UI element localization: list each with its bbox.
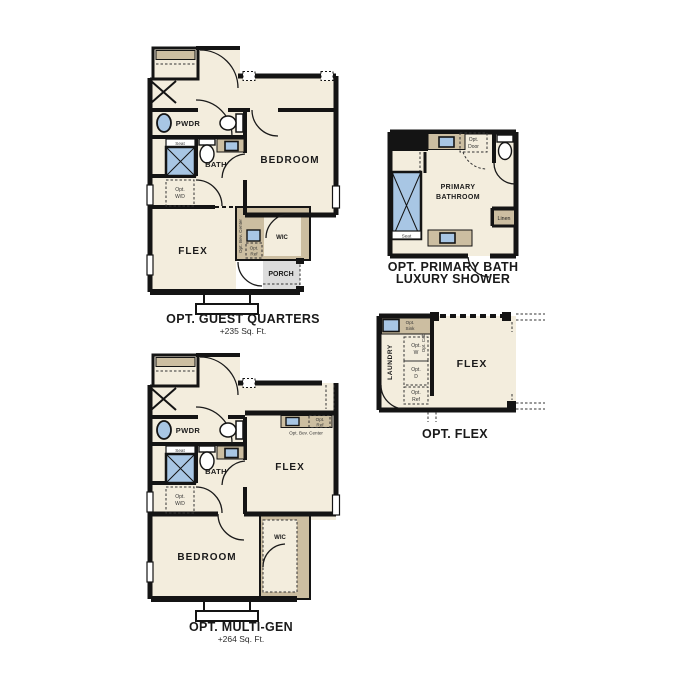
floor-plan-sheet: PWDR Seat BATH Opt. W/D BEDROOM FLEX Opt… [0,0,687,687]
window [333,495,340,515]
opt-ref-label: Ref [250,252,258,257]
window [147,562,153,582]
window [147,255,153,275]
bev-center-label: Opt. Bev. Center [289,431,323,436]
opt-wd-label: Opt. [175,494,184,500]
opt-d-label: D [414,374,418,380]
opt-door-label: Opt. [469,137,478,143]
sink-fixture [440,233,455,243]
opt-d-label: Opt. [411,367,420,373]
primary-shower: Seat [392,172,421,239]
room-label-bedroom: BEDROOM [177,552,236,563]
sink-fixture [157,421,171,439]
bev-center-label: Opt. Bev. Center [238,219,243,253]
room-label-flex: FLEX [275,462,305,473]
room-label-wic: WIC [276,235,288,241]
shower-seat-label: Seat [402,234,412,239]
opt-ref-label: Ref [412,397,420,403]
window [147,185,153,205]
opt-ref-label: Opt. [411,390,420,396]
toilet-tank [236,114,243,132]
opt-ref-label: Opt. [316,417,325,422]
plan-guest-quarters: PWDR Seat BATH Opt. W/D BEDROOM FLEX Opt… [147,48,340,336]
opt-cab-label: Opt. Cab [421,333,426,352]
opt-w-label: W [414,350,419,356]
toilet-tank [199,139,215,145]
plan-multi-gen: PWDR Seat BATH Opt. W/D Opt. Ref Opt. Be… [147,355,340,644]
opt-ref-label: Ref [316,423,324,428]
shower-seat-label: Seat [175,141,185,146]
multigen-entry-steps [196,601,258,621]
opt-wd-label: W/D [175,194,185,200]
toilet-tank [236,421,243,439]
opt-sink-label: Opt. [406,320,415,325]
room-label-laundry: LAUNDRY [387,344,394,380]
toilet-tank [497,135,513,142]
room-label-primary-2: BATHROOM [436,194,480,201]
room-label-flex: FLEX [457,358,488,370]
shower-seat-label: Seat [175,448,185,453]
plan-title-primary-2: LUXURY SHOWER [396,272,510,286]
opt-ref-label: Opt. [250,246,259,251]
room-label-porch: PORCH [268,271,293,278]
room-label-bath: BATH [205,160,227,169]
room-label-bedroom: BEDROOM [260,155,319,166]
sink-fixture [286,418,299,426]
room-label-bath: BATH [205,467,227,476]
plan-primary-bath: Seat Opt. Door Linen PRIMARY BATHROOM OP… [388,132,519,286]
plan-opt-flex: Opt. Sink Opt. Cab LAUNDRY Opt. W Opt. D… [379,312,545,441]
toilet-fixture [220,423,236,437]
room-label-wic: WIC [274,535,286,541]
sink-fixture [439,137,454,147]
room-label-flex: FLEX [178,246,208,257]
opt-wd-label: W/D [175,501,185,507]
room-label-pwdr: PWDR [176,119,201,128]
guest-entry-steps [196,294,258,314]
opt-door-label: Door [468,144,479,150]
sink-fixture [247,230,260,241]
plan-title-multigen: OPT. MULTI-GEN [189,620,293,634]
linen-label: Linen [498,216,511,222]
sink-fixture [383,320,399,332]
window [147,492,153,512]
primary-linen: Linen [494,210,515,225]
room-label-pwdr: PWDR [176,426,201,435]
window [333,186,340,208]
floor-plan-svg: PWDR Seat BATH Opt. W/D BEDROOM FLEX Opt… [0,0,687,687]
room-label-primary-1: PRIMARY [441,184,476,191]
sink-fixture [225,142,238,151]
plan-title-guest: OPT. GUEST QUARTERS [166,312,320,326]
plan-title-flex: OPT. FLEX [422,427,488,441]
opt-sink-label: Sink [406,326,416,331]
toilet-fixture [499,143,512,160]
sink-fixture [157,114,171,132]
toilet-tank [199,446,215,452]
sink-fixture [225,449,238,458]
toilet-fixture [220,116,236,130]
plan-subtitle-guest: +235 Sq. Ft. [220,326,267,336]
opt-wd-label: Opt. [175,187,184,193]
opt-w-label: Opt. [411,343,420,349]
plan-subtitle-multigen: +264 Sq. Ft. [218,634,265,644]
